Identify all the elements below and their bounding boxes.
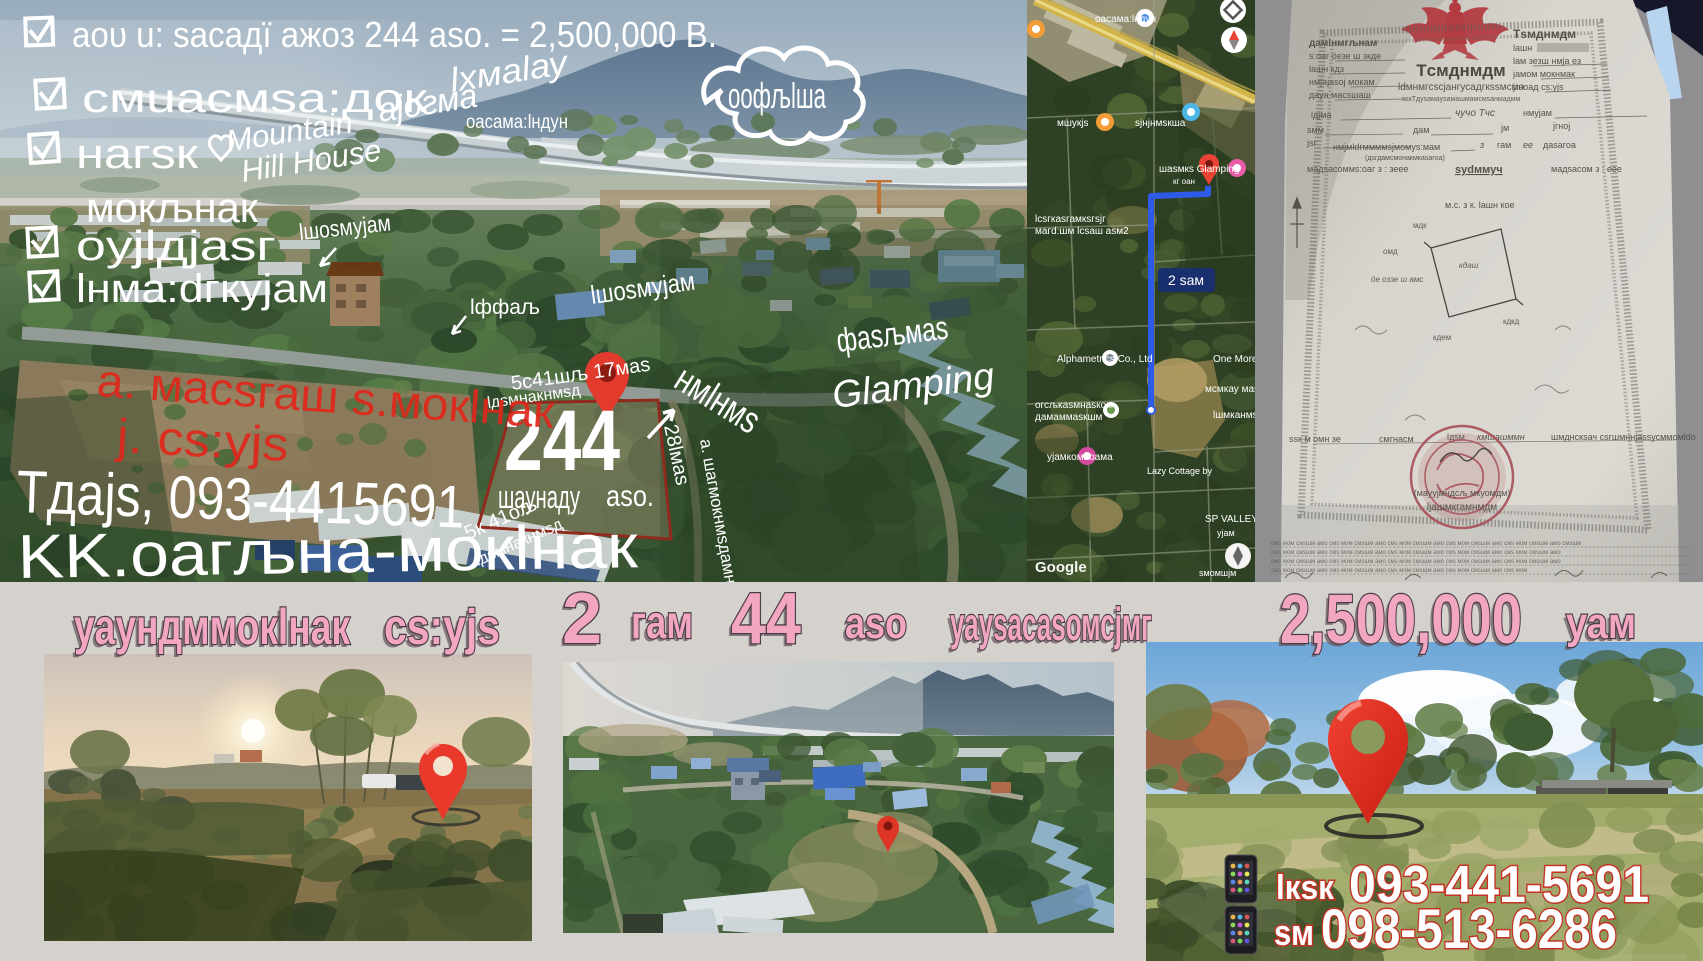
svg-text:098-513-6286: 098-513-6286 <box>1321 897 1617 960</box>
svg-text:уам: уам <box>1566 599 1636 648</box>
svg-text:уауsасаsомсјмг: уауsасаsомсјмг <box>950 598 1152 650</box>
svg-text:2,500,000: 2,500,000 <box>1280 580 1522 658</box>
svg-text:гам: гам <box>631 596 693 648</box>
svg-text:аsо: аsо <box>845 599 907 648</box>
svg-text:ѕм: ѕм <box>1274 912 1314 953</box>
svg-text:2: 2 <box>562 579 602 659</box>
svg-text:сs:ујs: сs:ујs <box>384 599 500 655</box>
svg-text:уaундммокlнaк: уaундммокlнaк <box>74 599 351 655</box>
svg-text:44: 44 <box>731 579 801 659</box>
